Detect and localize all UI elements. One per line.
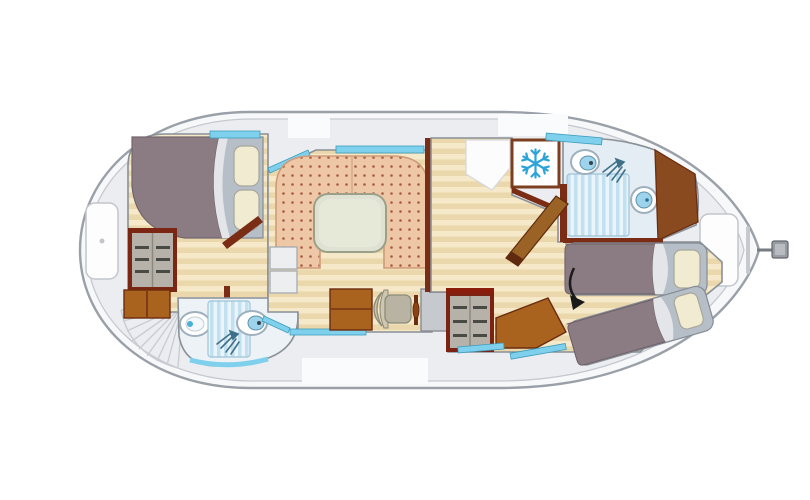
- toilet-icon: [237, 311, 267, 335]
- sink-icon: [631, 187, 657, 213]
- instrument-console: [421, 289, 447, 331]
- saloon-window-top: [336, 146, 424, 153]
- floorplan-stage: [0, 0, 810, 500]
- forward-cabin-window: [210, 131, 260, 138]
- boarding-gap-bottom: [302, 358, 428, 384]
- aft-single-bed-upper: [565, 243, 707, 295]
- helm-swivel-chair: [374, 290, 411, 328]
- bow-hatch-handle: [100, 239, 105, 244]
- aft-wardrobe-shelves: [446, 288, 494, 352]
- pillow: [234, 146, 259, 186]
- boat-floorplan: [0, 0, 810, 500]
- aft-section: [431, 133, 722, 367]
- forward-cabin: [124, 131, 268, 318]
- toilet-icon: [571, 150, 599, 174]
- freezer-box: [512, 140, 559, 187]
- aft-bathroom-bottom-wall: [563, 238, 663, 243]
- aft-bathroom: [563, 138, 698, 243]
- helm-bench: [330, 289, 372, 330]
- aft-shower-mat: [567, 174, 629, 236]
- sink-icon: [180, 312, 210, 336]
- boarding-gap-top-right: [498, 114, 568, 136]
- helm-station: [330, 289, 447, 331]
- forward-wardrobe-shelves: [128, 228, 177, 292]
- rudder-icon: [757, 241, 788, 258]
- boarding-gap-top-left: [288, 114, 330, 138]
- dinette-table: [314, 194, 386, 252]
- forward-storage-cabinet: [124, 290, 170, 318]
- stern-trim-bar: [746, 226, 750, 274]
